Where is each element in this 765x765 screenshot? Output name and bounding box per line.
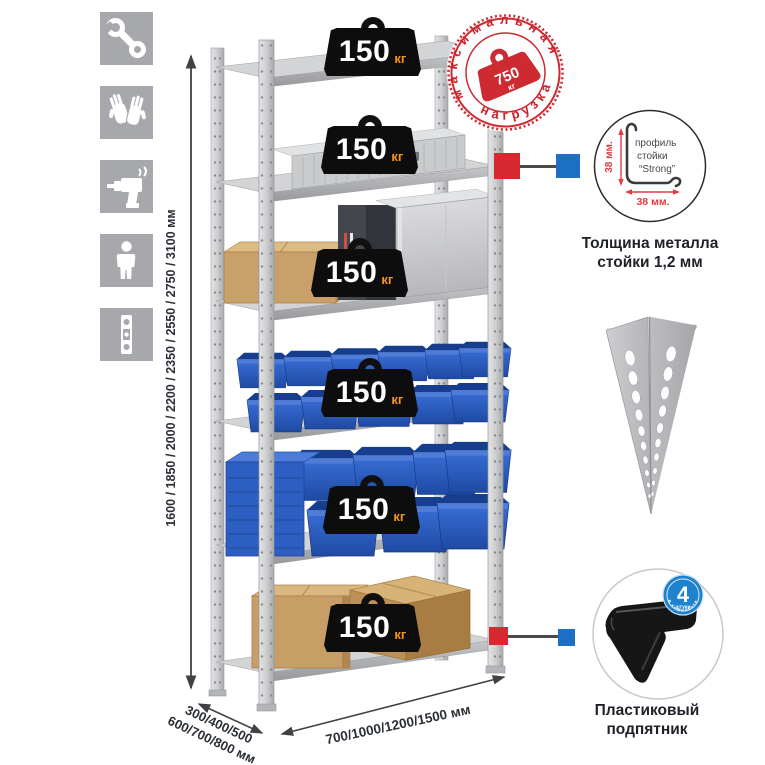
- badge-weight-icon: 150 кг: [311, 249, 408, 297]
- foot-caption-line1: Пластиковый: [562, 701, 732, 720]
- badge-unit: кг: [394, 627, 406, 642]
- max-load-stamp: максимальная нагрузка 750 кг: [443, 10, 568, 135]
- badge-unit: кг: [393, 509, 405, 524]
- badge-value: 150: [339, 35, 391, 69]
- badge-value: 150: [339, 611, 391, 645]
- profile-caption-line1: Толщина металла: [565, 234, 735, 253]
- badge-weight-icon: 150 кг: [323, 486, 420, 534]
- height-dimension-label: 1600 / 1850 / 2000 / 2200 / 2350 / 2550 …: [164, 168, 178, 568]
- badge-unit: кг: [381, 272, 393, 287]
- badge-unit: кг: [391, 149, 403, 164]
- callout-blue-square-top: [556, 154, 580, 178]
- badge-weight-icon: 150 кг: [321, 126, 418, 174]
- badge-weight-icon: 150 кг: [324, 28, 421, 76]
- callout-line-bottom: [506, 635, 558, 638]
- load-badge-shelf2: 150 кг: [321, 115, 418, 174]
- badge-value: 150: [338, 493, 390, 527]
- badge-weight-icon: 150 кг: [321, 369, 418, 417]
- callout-red-square-bottom: [489, 627, 508, 645]
- profile-caption-line2: стойки 1,2 мм: [565, 253, 735, 272]
- badge-unit: кг: [394, 51, 406, 66]
- profile-caption: Толщина металла стойки 1,2 мм: [565, 234, 735, 273]
- load-badge-shelf1: 150 кг: [324, 17, 421, 76]
- load-badge-shelf5: 150 кг: [323, 475, 420, 534]
- badge-value: 150: [336, 376, 388, 410]
- callout-blue-square-bottom: [558, 629, 575, 646]
- foot-caption-line2: подпятник: [562, 720, 732, 739]
- load-badge-shelf3: 150 кг: [311, 238, 408, 297]
- callout-line-top: [518, 165, 558, 168]
- badge-value: 150: [326, 256, 378, 290]
- callout-red-square-top: [494, 153, 520, 179]
- load-badge-shelf6: 150 кг: [324, 593, 421, 652]
- load-badge-shelf4: 150 кг: [321, 358, 418, 417]
- foot-caption: Пластиковый подпятник: [562, 701, 732, 740]
- badge-weight-icon: 150 кг: [324, 604, 421, 652]
- product-infographic: 1600 / 1850 / 2000 / 2200 / 2350 / 2550 …: [0, 0, 765, 765]
- badge-unit: кг: [391, 392, 403, 407]
- badge-value: 150: [336, 133, 388, 167]
